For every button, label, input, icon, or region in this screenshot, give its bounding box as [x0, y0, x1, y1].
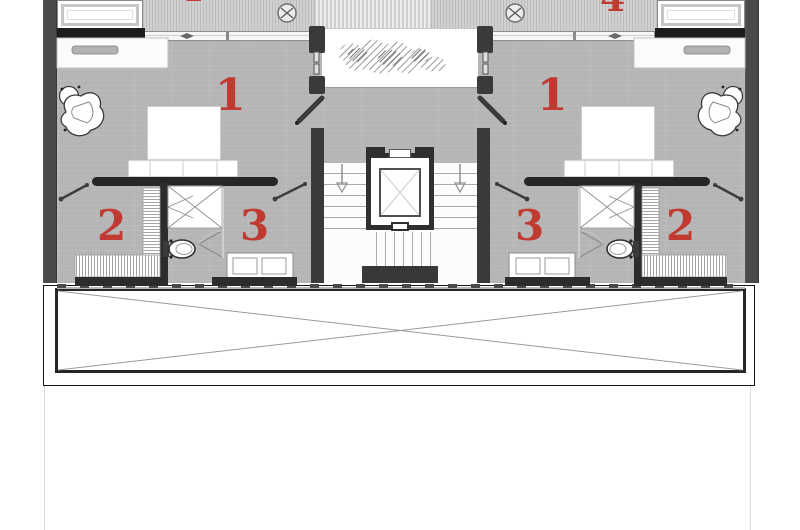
stair-wall-right [477, 128, 490, 283]
floor-plan: 1 1 2 3 3 2 4 4 [0, 0, 800, 530]
elevator-counterweight [391, 222, 409, 231]
glazing-mullions [57, 284, 745, 288]
wall-dash-left [59, 40, 143, 44]
stair-treads-right [434, 163, 477, 231]
top-wall-left [55, 28, 145, 38]
room-label-bath-right: 3 [515, 205, 544, 247]
stair-treads-left [324, 163, 366, 231]
room-label-bath-left: 3 [240, 205, 269, 247]
room-label-closet-right: 2 [666, 205, 695, 247]
room-label-closet-left: 2 [97, 205, 126, 247]
facade-line-right [750, 386, 751, 530]
skylight-frame-inner [667, 10, 735, 20]
stair-landing-wall [362, 266, 438, 283]
skylight-frame-inner [67, 10, 133, 20]
room-label-bedroom-right: 1 [537, 74, 568, 118]
stair-treads-bottom [368, 232, 432, 266]
elevator-wall-tab-right [415, 147, 434, 155]
elevator-cab [379, 168, 421, 217]
top-wall-right [655, 28, 747, 38]
planter-bay [322, 29, 478, 88]
facade-line-left [44, 386, 45, 530]
post-top-left [309, 26, 325, 53]
post-bottom-left [309, 76, 325, 94]
sliding-door-track-left [143, 31, 311, 41]
deck-skylight-strip [316, 0, 430, 28]
elevator-wall-tab-left [366, 147, 385, 155]
post-bottom-right [477, 76, 493, 94]
room-label-bedroom-left: 1 [215, 74, 246, 118]
room-label-upper-right: 4 [600, 0, 625, 17]
elevator-door [389, 149, 411, 158]
stair-wall-left [311, 128, 324, 283]
skylight-room-right [657, 0, 745, 30]
post-top-right [477, 26, 493, 53]
outer-wall-right [745, 0, 759, 283]
balcony-void-area [55, 288, 746, 373]
room-label-upper-left: 4 [178, 0, 203, 7]
sliding-door-track-right [490, 31, 655, 41]
wall-dash-right [659, 40, 743, 44]
skylight-room-left [57, 0, 143, 30]
outer-wall-left [43, 0, 57, 283]
